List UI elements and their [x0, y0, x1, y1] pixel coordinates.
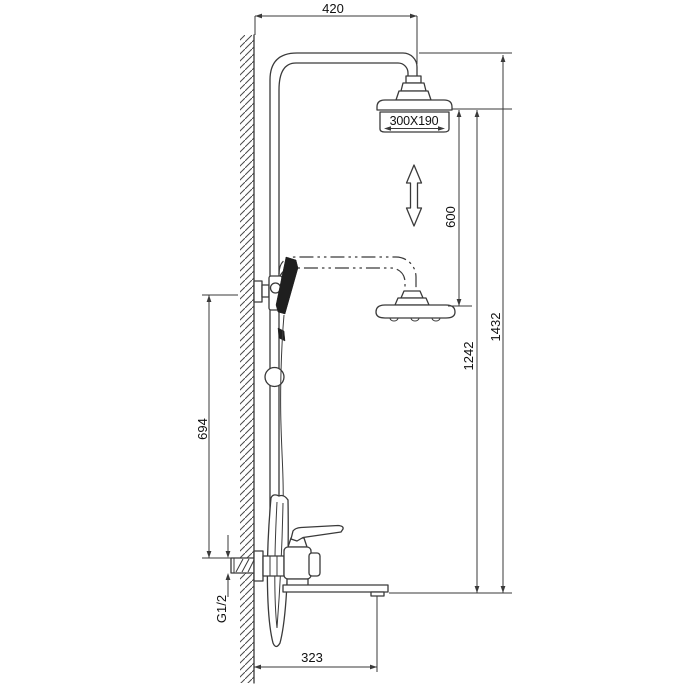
wall [240, 35, 254, 683]
dimension-600-label: 600 [443, 206, 458, 228]
dimension-694: 694 [195, 295, 238, 558]
dimension-g12-label: G1/2 [214, 595, 229, 623]
dimension-1242: 1242 [461, 110, 479, 593]
dimension-1432: 1432 [488, 55, 505, 593]
dimension-600: 600 [443, 110, 461, 306]
head-size-label: 300X190 [390, 114, 439, 128]
dimension-1242-label: 1242 [461, 342, 476, 371]
mixer-body [284, 547, 311, 579]
dimension-323-label: 323 [301, 650, 323, 665]
dimension-420: 420 [255, 1, 417, 64]
height-adjust-arrow [407, 165, 422, 226]
wall-flange [254, 551, 263, 581]
diverter-knob [309, 553, 320, 576]
shower-system-drawing: 300X190 [0, 0, 700, 700]
dimension-1432-label: 1432 [488, 313, 503, 342]
eccentric-nut [263, 556, 284, 576]
overhead-shower-head: 300X190 [377, 100, 452, 132]
lower-shower-head [376, 291, 455, 321]
shower-head-connector [396, 76, 431, 100]
wall-inlet-pipe [231, 558, 254, 573]
wall-hatch [240, 35, 254, 683]
technical-drawing-canvas: 300X190 [0, 0, 700, 700]
spout-shelf [283, 585, 388, 596]
dimension-420-label: 420 [322, 1, 344, 16]
mixer-lever-handle [291, 526, 343, 542]
dimension-694-label: 694 [195, 418, 210, 440]
phantom-arm-low-position [279, 257, 416, 291]
dimension-g12: G1/2 [214, 535, 230, 623]
